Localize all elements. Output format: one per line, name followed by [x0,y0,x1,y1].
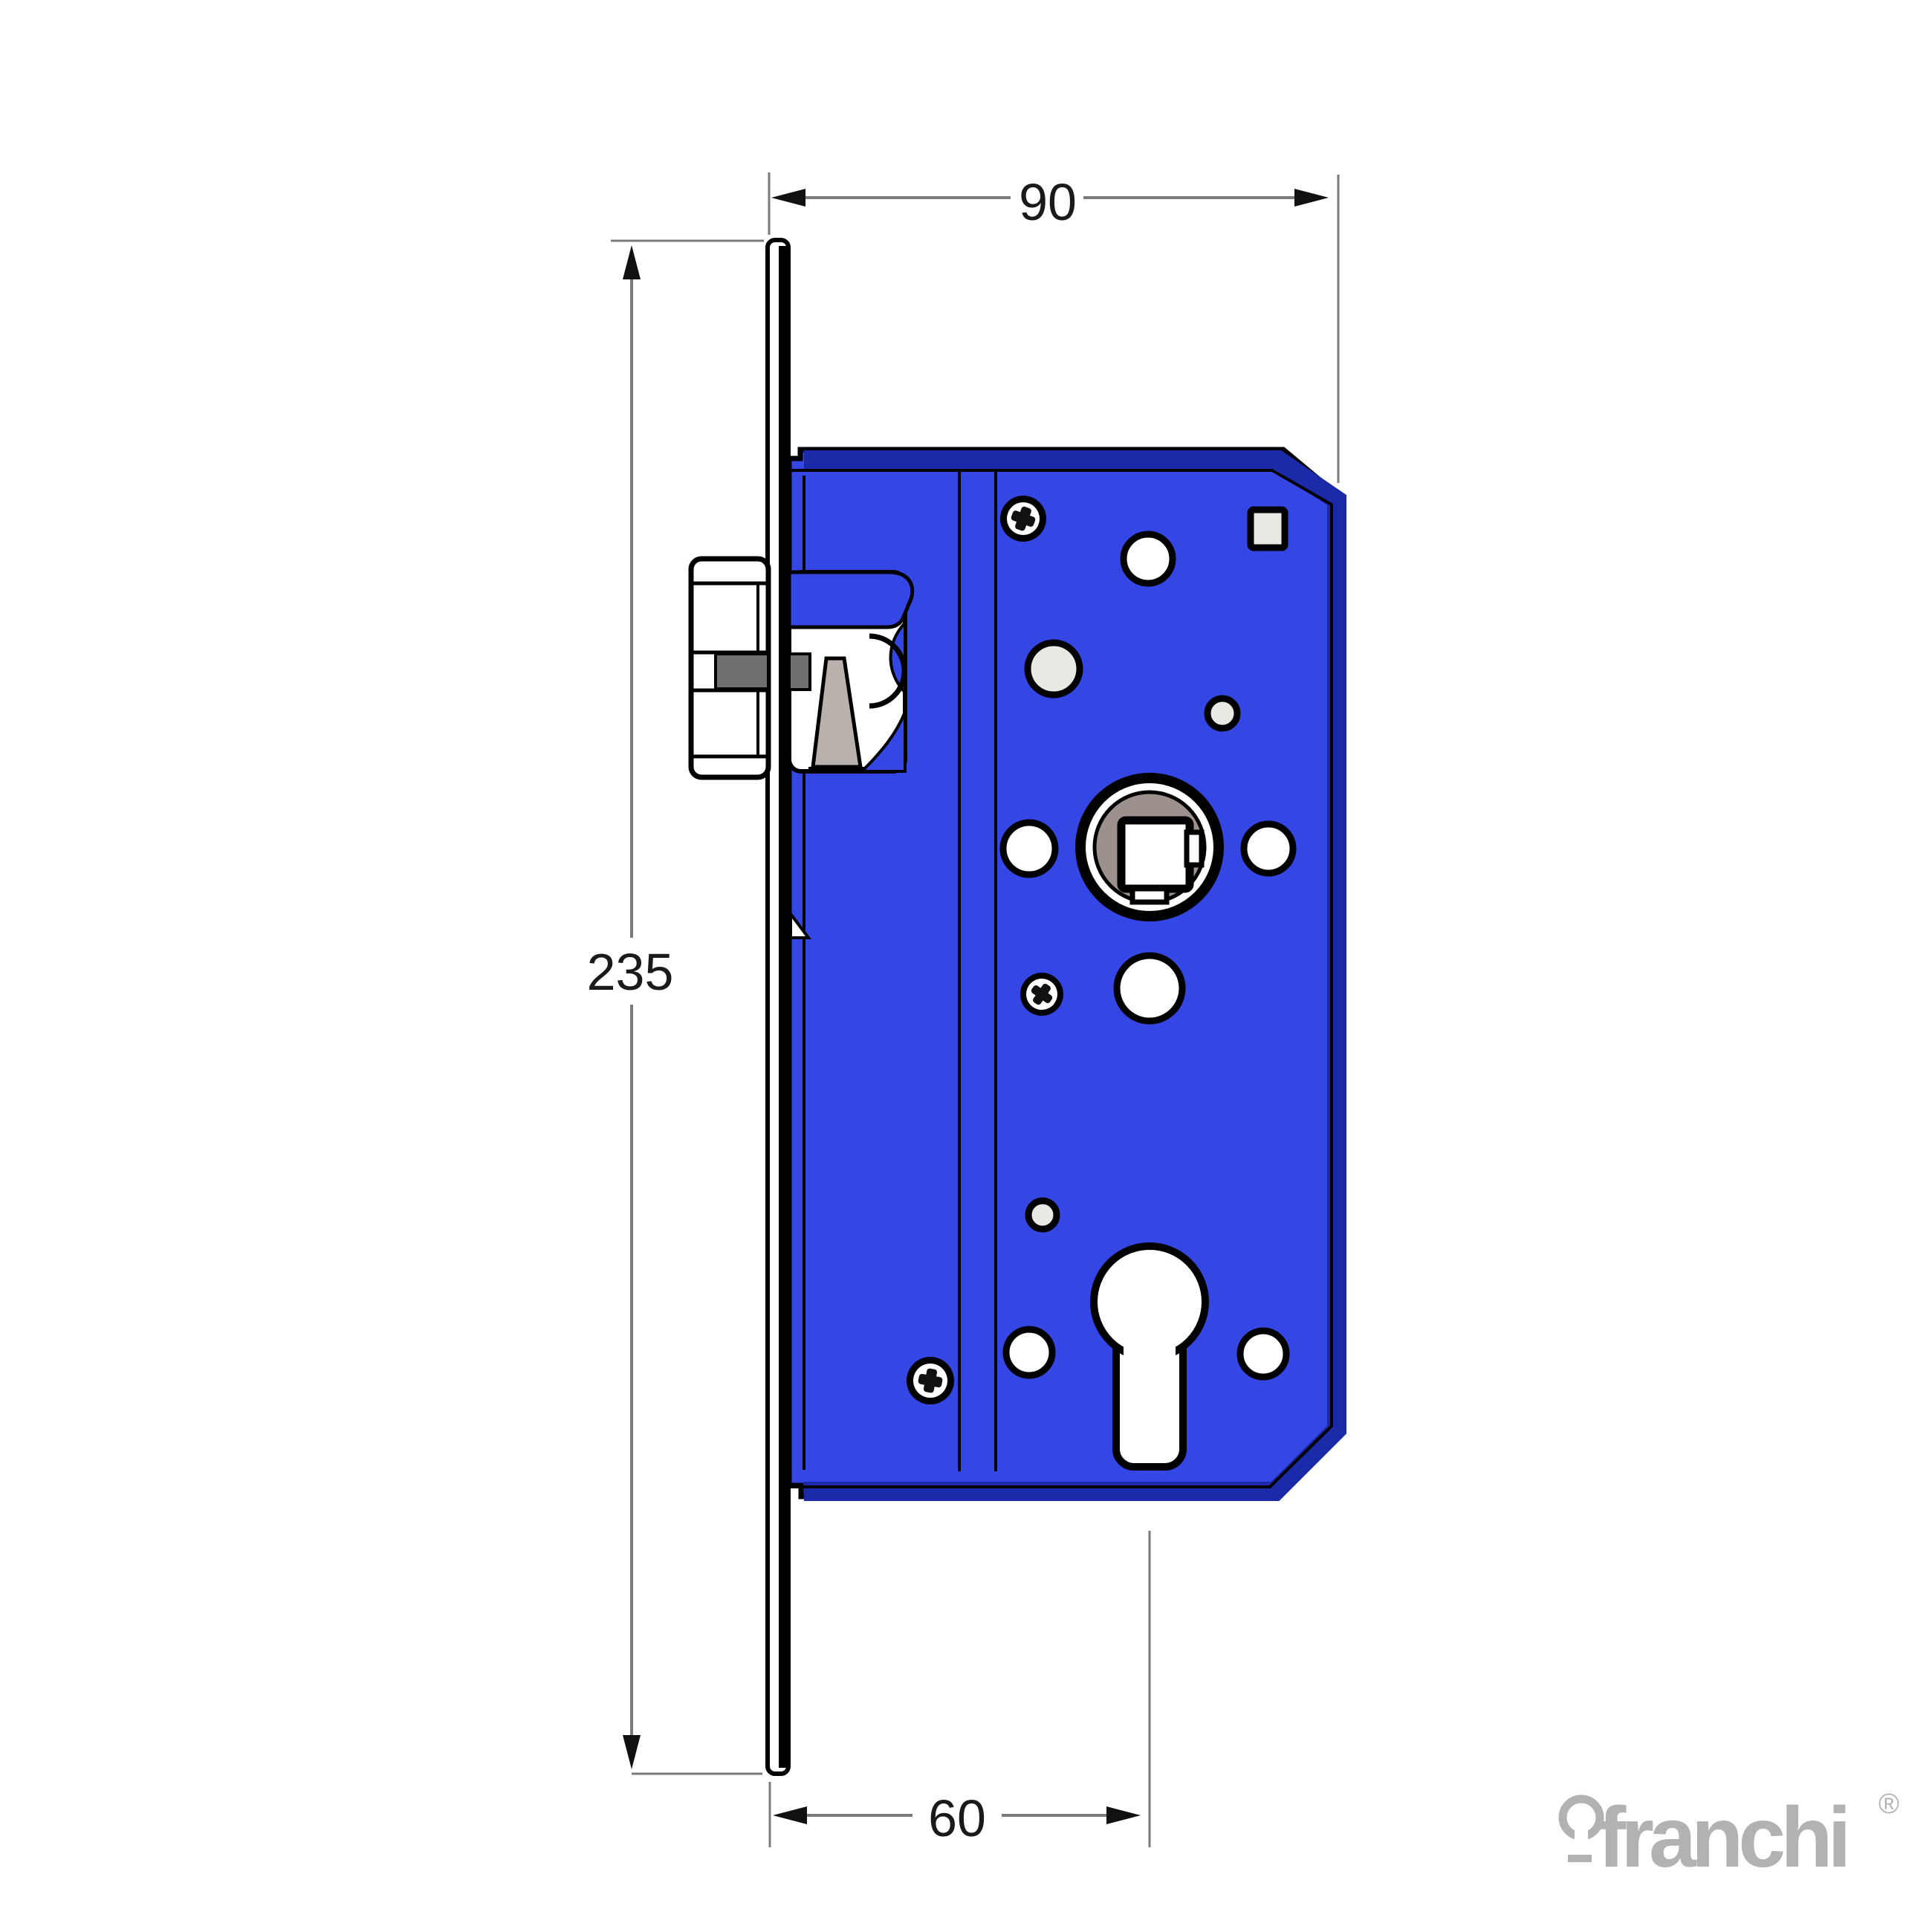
hole-upper-small [1207,698,1237,728]
hole-below-hub [1117,956,1182,1021]
hub-side-tab [1187,832,1202,865]
latch-tail-block [789,654,810,690]
latch-bevel-band [716,654,768,689]
faceplate-edge-bar [779,246,787,1768]
hole-lower-left [1006,1329,1052,1375]
follower-hub [1075,773,1224,921]
brand-logo: franchi ® [1563,1789,1899,1885]
hole-square [1251,510,1285,548]
arrow-right-icon [1106,1806,1141,1824]
brand-name: franchi [1598,1790,1846,1885]
screw-icon [1020,973,1063,1016]
registered-mark: ® [1878,1789,1899,1820]
latch-bolt [691,559,768,777]
keyhole-slot [1575,1821,1588,1855]
hole-hub-right [1244,824,1293,873]
hole-lower-right [1240,1331,1286,1377]
keyhole-foot [1568,1855,1592,1862]
dim-label-backset: 60 [928,1789,986,1847]
dim-label-case-depth: 90 [1019,173,1077,231]
lock-drawing: 90 235 60 franchi ® [0,0,1932,1932]
cylinder-join-cover [1124,1294,1176,1366]
hole-small-mid [1028,1201,1057,1229]
arrow-up-icon [623,245,641,279]
latch-lever-top [789,572,912,627]
dimension-case-depth: 90 [769,172,1338,483]
screw-icon [1000,496,1046,542]
faceplate [768,240,788,1774]
arrow-left-icon [773,1806,807,1824]
hub-square-spindle-hole [1121,820,1190,889]
hub-bottom-tab [1132,889,1167,902]
hole-hub-left [1003,823,1055,875]
arrow-left-icon [771,189,805,207]
dim-label-faceplate-height: 235 [587,943,674,1001]
hole-top-center [1124,534,1173,583]
dimension-faceplate-height: 235 [587,241,764,1774]
arrow-down-icon [623,1735,641,1769]
screw-icon [907,1357,954,1404]
dimension-backset: 60 [770,1531,1150,1847]
hole-upper-left [1028,643,1080,695]
technical-drawing-page: 90 235 60 franchi ® [0,0,1932,1932]
arrow-right-icon [1294,189,1329,207]
